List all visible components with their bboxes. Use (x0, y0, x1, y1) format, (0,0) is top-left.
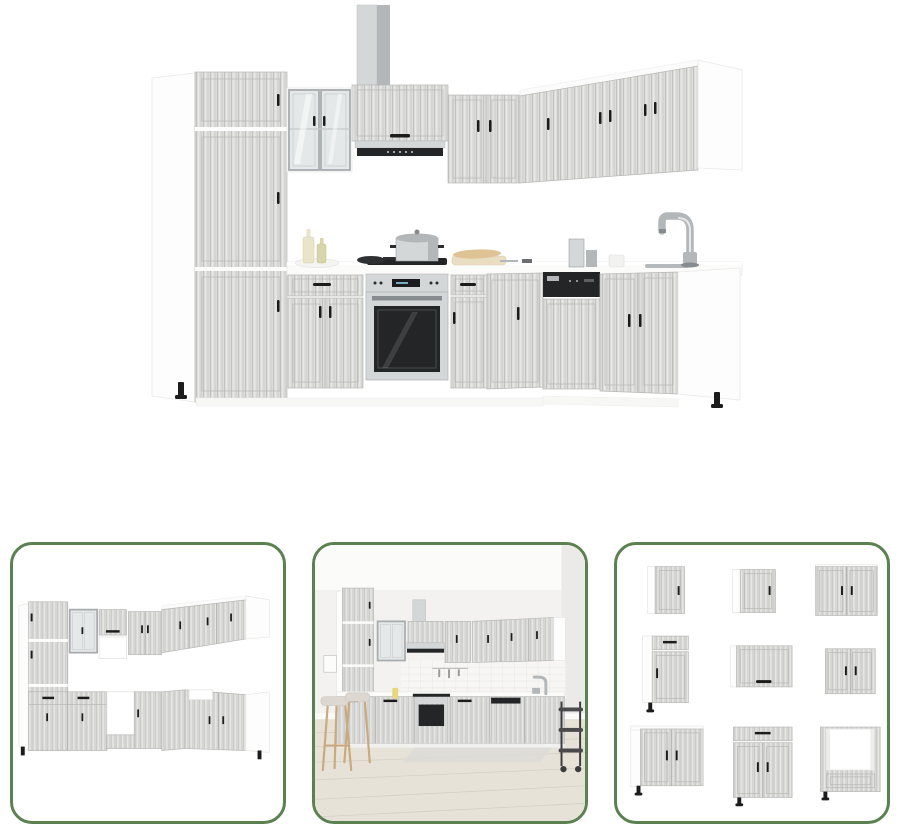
thumbnail-room-scene[interactable] (312, 542, 588, 824)
extractor-hood-cabinet (352, 85, 448, 156)
base-cabinet-drawer-left (288, 275, 363, 388)
sink-base-cabinet (600, 268, 740, 400)
chimney-duct (357, 5, 390, 85)
unit-wall-cabinet-double (816, 565, 878, 616)
wall-cabinets-right (520, 60, 742, 183)
unit-flap-wall-cabinet (730, 646, 792, 687)
wall-cabinets-front (448, 95, 520, 183)
unit-wall-cabinet-narrow (647, 567, 684, 614)
thumbnail-row (10, 542, 890, 824)
unit-base-cabinet-wide (631, 726, 703, 795)
unit-base-cabinet-drawer-double (733, 727, 792, 806)
corner-base-cabinet (487, 273, 543, 389)
tall-cabinet (152, 72, 287, 402)
dishwasher (543, 272, 600, 389)
thumbnail-units-grid[interactable] (614, 542, 890, 824)
unit-wall-cabinet-double-small (825, 649, 875, 694)
unit-oven-housing (820, 727, 880, 800)
base-cabinet-drawer-mid (451, 275, 487, 388)
counter-bottles (295, 229, 339, 268)
unit-wall-cabinet-single (732, 570, 775, 613)
oven (366, 274, 448, 380)
angle-view-kitchen (19, 596, 269, 759)
unit-base-cabinet-drawer (642, 636, 688, 712)
thumbnail-alternate-angle[interactable] (10, 542, 286, 824)
faucet (659, 216, 699, 268)
cooktop-with-pot (357, 230, 447, 266)
main-product-image[interactable] (0, 0, 900, 532)
glass-wall-cabinet (287, 88, 352, 172)
